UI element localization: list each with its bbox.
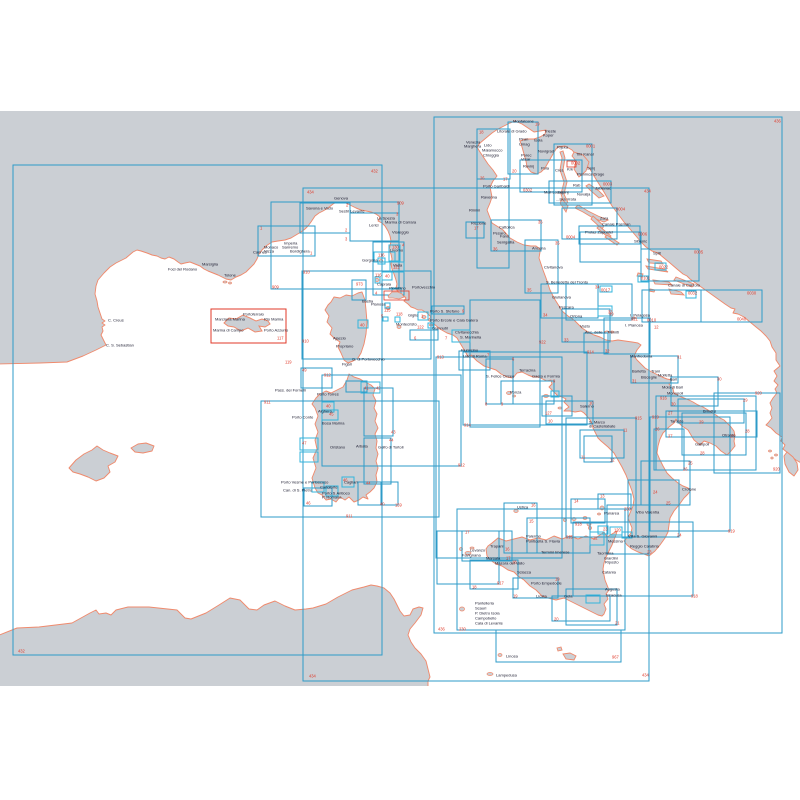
svg-text:Pass. dei Fornelli: Pass. dei Fornelli	[275, 388, 306, 393]
svg-text:Arbata: Arbata	[356, 444, 369, 449]
svg-text:Crotone: Crotone	[682, 487, 697, 492]
svg-text:28: 28	[745, 429, 750, 434]
svg-text:11: 11	[581, 455, 586, 460]
svg-text:Trani: Trani	[651, 369, 660, 374]
svg-text:Split: Split	[653, 251, 662, 256]
svg-text:Vrsar: Vrsar	[521, 157, 531, 162]
svg-text:Montecristo: Montecristo	[396, 322, 417, 327]
svg-text:434: 434	[644, 189, 652, 194]
svg-text:Tolone: Tolone	[224, 273, 237, 278]
svg-text:919: 919	[652, 415, 660, 420]
svg-text:40: 40	[385, 274, 390, 279]
svg-text:911: 911	[264, 400, 271, 405]
svg-text:21: 21	[615, 621, 620, 626]
svg-text:Figari: Figari	[342, 362, 352, 367]
svg-text:Chioggia: Chioggia	[483, 153, 500, 158]
svg-text:Molfetta: Molfetta	[658, 373, 673, 378]
svg-text:Alghero: Alghero	[318, 409, 333, 414]
svg-text:912: 912	[458, 463, 466, 468]
svg-text:436: 436	[774, 119, 782, 124]
svg-text:Marina di Campo: Marina di Campo	[213, 328, 244, 333]
svg-text:Catania: Catania	[602, 570, 617, 575]
svg-text:Punticella S. Flavia: Punticella S. Flavia	[526, 539, 561, 544]
svg-text:28: 28	[700, 451, 705, 456]
svg-text:909: 909	[397, 201, 405, 206]
svg-text:Prolaz Zapuntel: Prolaz Zapuntel	[585, 230, 613, 235]
svg-text:Siracusa: Siracusa	[606, 593, 622, 598]
svg-text:Senigallia: Senigallia	[497, 240, 515, 245]
svg-text:Augusta: Augusta	[605, 587, 620, 592]
svg-text:42: 42	[376, 386, 381, 391]
svg-text:Umag: Umag	[519, 142, 530, 147]
svg-text:Giglio: Giglio	[408, 313, 419, 318]
svg-text:Anc. delle I. Tremiti: Anc. delle I. Tremiti	[585, 330, 619, 335]
svg-text:Ajaccio: Ajaccio	[333, 336, 347, 341]
svg-text:19: 19	[535, 122, 540, 127]
svg-text:116: 116	[378, 253, 385, 258]
svg-text:Viareggio: Viareggio	[392, 230, 410, 235]
svg-text:44: 44	[366, 481, 371, 486]
svg-text:Lerici: Lerici	[369, 223, 379, 228]
svg-text:S. Benedetto del Tronto: S. Benedetto del Tronto	[546, 280, 589, 285]
svg-text:0005: 0005	[694, 250, 704, 255]
svg-text:Fiumicino: Fiumicino	[461, 348, 479, 353]
svg-text:Salerno: Salerno	[580, 404, 595, 409]
svg-text:Lido di Roma: Lido di Roma	[463, 354, 487, 359]
svg-text:Porto Vesme e Portoscuso: Porto Vesme e Portoscuso	[281, 480, 329, 485]
svg-text:432: 432	[371, 169, 379, 174]
svg-text:967: 967	[612, 655, 620, 660]
svg-text:Marina di Carrara: Marina di Carrara	[385, 220, 417, 225]
svg-text:18: 18	[472, 585, 477, 590]
svg-text:35: 35	[527, 288, 532, 293]
svg-text:32: 32	[605, 349, 610, 354]
svg-text:434: 434	[307, 190, 315, 195]
svg-text:Isola: Isola	[534, 138, 543, 143]
svg-text:16: 16	[505, 547, 510, 552]
svg-text:Porto Empedocle: Porto Empedocle	[531, 581, 562, 586]
svg-text:36: 36	[493, 247, 498, 252]
svg-text:Ponza: Ponza	[510, 390, 522, 395]
svg-text:Savona e Vado: Savona e Vado	[306, 206, 334, 211]
svg-text:Porto Ercole e Cala Galera: Porto Ercole e Cala Galera	[430, 318, 479, 323]
svg-text:Gela: Gela	[564, 594, 573, 599]
svg-text:10: 10	[548, 419, 553, 424]
svg-text:I. Pelagosa: I. Pelagosa	[630, 313, 651, 318]
svg-text:Nizza: Nizza	[264, 249, 275, 254]
svg-text:P. Romana: P. Romana	[322, 495, 342, 500]
svg-text:23: 23	[603, 527, 608, 532]
svg-text:0004: 0004	[616, 207, 626, 212]
svg-text:Linosa: Linosa	[506, 654, 519, 659]
svg-text:di Castellabate: di Castellabate	[589, 424, 616, 429]
svg-text:G. di Portovecchio: G. di Portovecchio	[352, 357, 385, 362]
svg-text:Monopoli: Monopoli	[667, 391, 683, 396]
svg-text:18: 18	[479, 130, 484, 135]
svg-text:0001: 0001	[586, 144, 596, 149]
svg-text:Porto Azzurro: Porto Azzurro	[264, 328, 289, 333]
svg-text:159: 159	[395, 503, 403, 508]
svg-text:0030: 0030	[747, 291, 757, 296]
svg-text:23: 23	[647, 550, 652, 555]
svg-text:Zara: Zara	[600, 216, 609, 221]
svg-text:46: 46	[306, 501, 311, 506]
svg-text:Can. di S. Pietro: Can. di S. Pietro	[283, 488, 313, 493]
svg-text:0010: 0010	[647, 318, 657, 323]
svg-text:920: 920	[755, 391, 763, 396]
svg-text:27: 27	[668, 434, 673, 439]
svg-text:26: 26	[655, 427, 660, 432]
svg-text:0017: 0017	[601, 288, 611, 293]
svg-text:Cagliari: Cagliari	[344, 480, 358, 485]
svg-text:Sibenic: Sibenic	[634, 239, 647, 244]
svg-text:35: 35	[555, 241, 560, 246]
svg-text:Novalja: Novalja	[577, 192, 591, 197]
svg-text:Novigrad: Novigrad	[538, 149, 554, 154]
svg-text:0032: 0032	[688, 291, 698, 296]
svg-text:0006: 0006	[638, 232, 648, 237]
svg-text:C. Creus: C. Creus	[108, 318, 124, 323]
svg-text:20: 20	[554, 617, 559, 622]
svg-text:910: 910	[302, 339, 310, 344]
svg-text:Marghera: Marghera	[464, 144, 482, 149]
svg-text:34: 34	[595, 285, 600, 290]
svg-text:Marciana Marina: Marciana Marina	[215, 317, 246, 322]
svg-text:Cres: Cres	[555, 168, 563, 173]
svg-text:Taranto: Taranto	[670, 419, 684, 424]
svg-text:Termini Imerese: Termini Imerese	[541, 550, 570, 555]
svg-text:118: 118	[396, 312, 403, 317]
svg-text:230: 230	[624, 507, 632, 512]
svg-text:Monfalcone: Monfalcone	[513, 119, 534, 124]
svg-text:12: 12	[654, 325, 659, 330]
svg-text:Porto S. Stefano: Porto S. Stefano	[430, 309, 460, 314]
svg-text:117: 117	[277, 336, 284, 341]
svg-text:30: 30	[717, 377, 722, 382]
svg-text:Terracina: Terracina	[519, 368, 536, 373]
svg-text:0002: 0002	[571, 161, 581, 166]
svg-text:922: 922	[539, 340, 547, 345]
svg-text:13: 13	[600, 494, 605, 499]
svg-text:917: 917	[497, 581, 505, 586]
svg-text:17: 17	[474, 226, 479, 231]
svg-text:918: 918	[575, 522, 583, 527]
svg-text:0040: 0040	[737, 317, 747, 322]
svg-text:Rovinj: Rovinj	[523, 164, 534, 169]
svg-text:24: 24	[653, 490, 658, 495]
svg-text:Canale Pasman: Canale Pasman	[602, 222, 630, 227]
svg-text:29: 29	[699, 420, 704, 425]
svg-text:24: 24	[677, 533, 682, 538]
svg-text:Marsiglia: Marsiglia	[202, 262, 219, 267]
svg-text:30: 30	[671, 402, 676, 407]
svg-text:Pola: Pola	[541, 166, 550, 171]
svg-text:12: 12	[610, 458, 615, 463]
svg-text:Gaeta e Formia: Gaeta e Formia	[532, 374, 561, 379]
svg-text:Porto Conte: Porto Conte	[292, 415, 314, 420]
svg-text:Portoferraio: Portoferraio	[243, 312, 265, 317]
svg-text:Vibo Valentia: Vibo Valentia	[636, 510, 660, 515]
svg-text:912: 912	[324, 373, 332, 378]
svg-text:Piombino: Piombino	[389, 286, 406, 291]
svg-text:17: 17	[465, 530, 470, 535]
svg-text:915: 915	[635, 416, 643, 421]
svg-text:Ustica: Ustica	[517, 505, 529, 510]
svg-text:0004: 0004	[566, 235, 576, 240]
svg-text:Porto Torres: Porto Torres	[317, 392, 339, 397]
svg-text:15: 15	[529, 519, 534, 524]
svg-text:...ska Vrata: ...ska Vrata	[556, 197, 577, 202]
svg-text:Vada: Vada	[393, 263, 403, 268]
svg-text:Civitanova: Civitanova	[544, 265, 563, 270]
svg-text:36: 36	[538, 220, 543, 225]
svg-text:29: 29	[743, 398, 748, 403]
svg-text:0302: 0302	[523, 188, 533, 193]
svg-text:Ancona: Ancona	[532, 246, 546, 251]
svg-text:Carloforte: Carloforte	[320, 485, 338, 490]
svg-text:26: 26	[683, 467, 688, 472]
svg-text:Sestri Levante: Sestri Levante	[339, 209, 365, 214]
svg-text:Brindisi: Brindisi	[703, 409, 716, 414]
svg-text:Sciacca: Sciacca	[517, 570, 532, 575]
svg-text:122: 122	[417, 325, 425, 330]
svg-text:Pianosa: Pianosa	[371, 302, 386, 307]
svg-text:40: 40	[360, 323, 365, 328]
svg-text:Giannutri: Giannutri	[432, 326, 448, 331]
svg-text:Otranto: Otranto	[722, 433, 736, 438]
svg-text:40: 40	[380, 502, 385, 507]
svg-text:973: 973	[356, 282, 364, 287]
svg-text:916: 916	[660, 396, 668, 401]
svg-text:25: 25	[666, 501, 671, 506]
svg-text:Oristano: Oristano	[330, 445, 346, 450]
svg-text:Golfo di Tortoli: Golfo di Tortoli	[378, 445, 404, 450]
svg-text:49: 49	[302, 368, 307, 373]
svg-text:Rijeka: Rijeka	[557, 145, 569, 150]
svg-text:Pesaro: Pesaro	[493, 231, 506, 236]
svg-text:Gorgona: Gorgona	[362, 258, 378, 263]
svg-text:909: 909	[272, 285, 280, 290]
svg-text:913: 913	[437, 355, 445, 360]
svg-text:432: 432	[18, 649, 26, 654]
svg-text:Favignana: Favignana	[462, 553, 481, 558]
svg-text:Manfredonia: Manfredonia	[630, 354, 653, 359]
svg-text:Litorale di Grado: Litorale di Grado	[497, 129, 527, 134]
svg-text:116: 116	[375, 273, 382, 278]
svg-text:Genova: Genova	[334, 196, 349, 201]
svg-text:Ortona: Ortona	[570, 314, 583, 319]
svg-text:Vasto: Vasto	[580, 324, 591, 329]
svg-text:Rab: Rab	[573, 183, 581, 188]
svg-text:Koper: Koper	[543, 133, 554, 138]
svg-text:Giulianova: Giulianova	[552, 295, 572, 300]
svg-text:Mola di Bari: Mola di Bari	[662, 385, 683, 390]
svg-text:436: 436	[438, 627, 446, 632]
svg-text:25: 25	[688, 461, 693, 466]
svg-text:115: 115	[384, 308, 391, 313]
svg-text:434: 434	[309, 674, 317, 679]
svg-text:S. Felice Circeo: S. Felice Circeo	[486, 374, 515, 379]
svg-text:Rimini: Rimini	[469, 208, 480, 213]
svg-text:Bosa Marina: Bosa Marina	[322, 421, 345, 426]
svg-text:26: 26	[480, 176, 485, 181]
svg-text:434: 434	[642, 673, 650, 678]
svg-text:Bisceglie: Bisceglie	[641, 375, 658, 380]
svg-text:Cattolica: Cattolica	[499, 225, 515, 230]
svg-text:127: 127	[545, 411, 553, 416]
svg-text:0022: 0022	[659, 265, 669, 270]
svg-text:Messina: Messina	[608, 539, 624, 544]
svg-text:119: 119	[285, 360, 292, 365]
svg-text:Licata: Licata	[536, 594, 547, 599]
svg-text:19: 19	[513, 594, 518, 599]
svg-text:915: 915	[566, 535, 574, 540]
svg-text:Bordighera: Bordighera	[290, 249, 310, 254]
svg-text:33: 33	[564, 338, 569, 343]
svg-text:16: 16	[531, 503, 536, 508]
svg-text:Mali Losinj: Mali Losinj	[544, 190, 563, 195]
svg-text:Villa S. Giovanni: Villa S. Giovanni	[628, 534, 657, 539]
svg-text:22: 22	[593, 536, 598, 541]
svg-text:Pescara: Pescara	[559, 305, 574, 310]
svg-text:Portovecchio: Portovecchio	[412, 285, 436, 290]
svg-text:914: 914	[464, 423, 472, 428]
svg-text:Riccione: Riccione	[471, 221, 487, 226]
svg-text:Jablanac: Jablanac	[595, 186, 611, 191]
svg-text:Lampedusa: Lampedusa	[496, 673, 518, 678]
svg-text:0101: 0101	[641, 276, 651, 281]
svg-text:Krk: Krk	[567, 167, 573, 172]
svg-text:Gallipoli: Gallipoli	[695, 442, 709, 447]
svg-text:914: 914	[587, 350, 595, 355]
svg-text:C. S. Sebastian: C. S. Sebastian	[106, 343, 134, 348]
svg-text:Tihi Kanal: Tihi Kanal	[576, 152, 594, 157]
svg-text:34: 34	[543, 313, 548, 318]
svg-text:31: 31	[677, 355, 682, 360]
svg-text:I. Pianosa: I. Pianosa	[625, 323, 644, 328]
svg-text:Canale di Curzola: Canale di Curzola	[668, 283, 701, 288]
svg-text:919: 919	[728, 529, 736, 534]
svg-text:920: 920	[773, 467, 781, 472]
svg-text:918: 918	[691, 594, 699, 599]
svg-text:Panarea: Panarea	[604, 511, 620, 516]
svg-text:Propriano: Propriano	[336, 344, 354, 349]
svg-text:Foci del Rodano: Foci del Rodano	[168, 267, 198, 272]
svg-text:Ravenna: Ravenna	[481, 195, 498, 200]
svg-text:230: 230	[459, 627, 467, 632]
svg-text:31: 31	[632, 379, 637, 384]
svg-text:14: 14	[574, 499, 579, 504]
svg-text:Rio Marina: Rio Marina	[264, 317, 284, 322]
svg-text:Cala di Levante: Cala di Levante	[475, 621, 504, 626]
svg-text:39: 39	[609, 312, 614, 317]
svg-text:11: 11	[623, 428, 628, 433]
svg-text:S. Marinella: S. Marinella	[460, 335, 482, 340]
svg-text:20: 20	[512, 169, 517, 174]
svg-text:Riposto: Riposto	[605, 560, 619, 565]
svg-text:910: 910	[303, 270, 311, 275]
svg-text:911: 911	[346, 514, 353, 519]
svg-text:44: 44	[389, 438, 394, 443]
svg-text:Barletta: Barletta	[632, 369, 647, 374]
svg-text:Livorno: Livorno	[390, 248, 404, 253]
svg-text:Porto Garibaldi: Porto Garibaldi	[483, 184, 510, 189]
svg-text:43: 43	[391, 430, 396, 435]
svg-text:Reggio Calabria: Reggio Calabria	[630, 544, 659, 549]
svg-text:41: 41	[364, 386, 369, 391]
svg-text:Mazara del Vallo: Mazara del Vallo	[495, 561, 525, 566]
svg-text:Planinca Drage: Planinca Drage	[577, 172, 605, 177]
svg-text:47: 47	[302, 441, 307, 446]
svg-text:120: 120	[614, 528, 622, 533]
svg-text:27: 27	[668, 411, 673, 416]
svg-text:Senj: Senj	[587, 166, 595, 171]
svg-text:Trapani: Trapani	[490, 544, 504, 549]
svg-text:17: 17	[503, 177, 508, 182]
